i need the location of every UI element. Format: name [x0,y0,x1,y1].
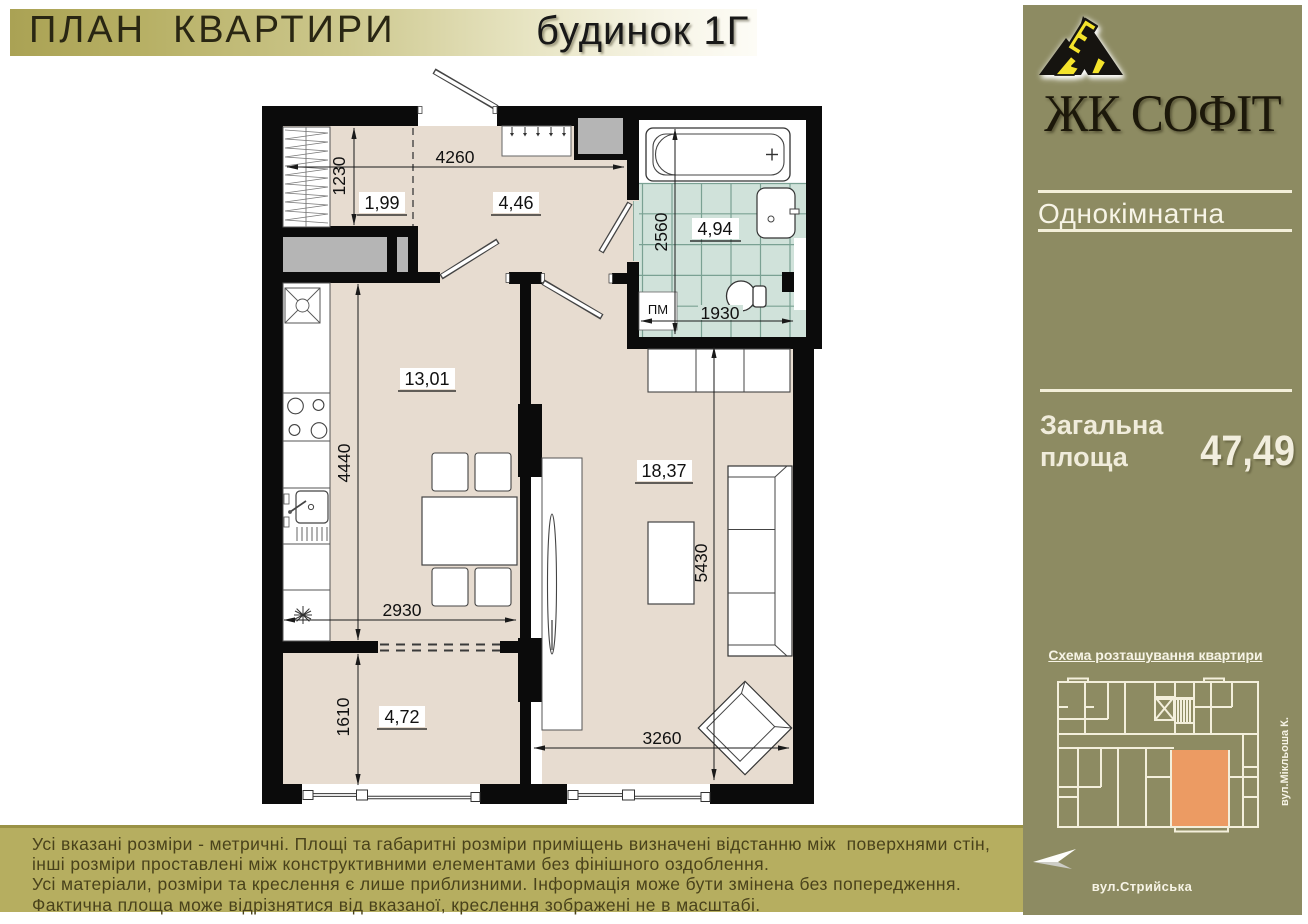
svg-text:4440: 4440 [334,443,354,482]
svg-text:1930: 1930 [701,303,740,323]
svg-text:ПМ: ПМ [648,302,668,317]
svg-text:2560: 2560 [651,212,671,251]
svg-text:3260: 3260 [643,728,682,748]
svg-text:2930: 2930 [383,600,422,620]
svg-text:4260: 4260 [436,147,475,167]
svg-text:1230: 1230 [329,156,349,195]
svg-text:4,72: 4,72 [384,707,419,727]
svg-text:4,94: 4,94 [697,219,732,239]
svg-text:1,99: 1,99 [364,193,399,213]
svg-text:1610: 1610 [333,697,353,736]
svg-text:4,46: 4,46 [498,193,533,213]
svg-text:18,37: 18,37 [641,461,686,481]
svg-text:5430: 5430 [691,543,711,582]
svg-text:13,01: 13,01 [404,369,449,389]
